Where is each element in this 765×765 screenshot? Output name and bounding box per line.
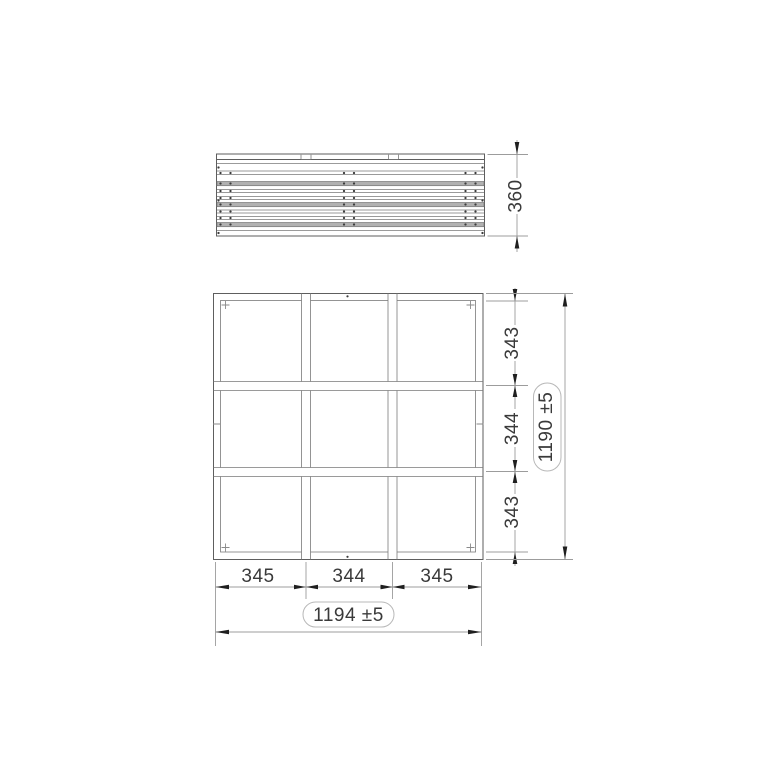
shaded-slats bbox=[217, 182, 484, 227]
dim-label-col-1: 345 bbox=[241, 566, 274, 587]
side-view bbox=[217, 154, 485, 236]
slat-lines bbox=[217, 171, 484, 231]
drawing-canvas: 360 bbox=[0, 0, 765, 765]
dim-rows-chain: 343 344 343 bbox=[486, 288, 528, 566]
plan-view bbox=[213, 294, 484, 560]
dim-label-overall-width: 1194 ±5 bbox=[313, 605, 384, 626]
vertical-bars bbox=[302, 294, 398, 560]
dim-overall-height: 1190 ±5 bbox=[486, 294, 573, 560]
corner-marks bbox=[213, 295, 484, 558]
dim-label-overall-height: 1190 ±5 bbox=[536, 392, 557, 463]
frame-inner bbox=[221, 301, 476, 553]
dim-label-col-2: 344 bbox=[332, 566, 365, 587]
dim-label-row-1: 343 bbox=[502, 326, 523, 359]
frame-outer bbox=[214, 294, 484, 560]
dim-label-depth: 360 bbox=[506, 179, 527, 212]
horizontal-bars bbox=[214, 382, 484, 477]
dim-label-row-2: 344 bbox=[502, 412, 523, 445]
dim-label-row-3: 343 bbox=[502, 495, 523, 528]
dim-overall-width: 1194 ±5 bbox=[216, 602, 482, 634]
technical-drawing: 360 bbox=[0, 0, 765, 765]
dim-depth: 360 bbox=[488, 140, 529, 252]
dim-label-col-3: 345 bbox=[420, 566, 453, 587]
top-rail-notches bbox=[301, 155, 399, 160]
